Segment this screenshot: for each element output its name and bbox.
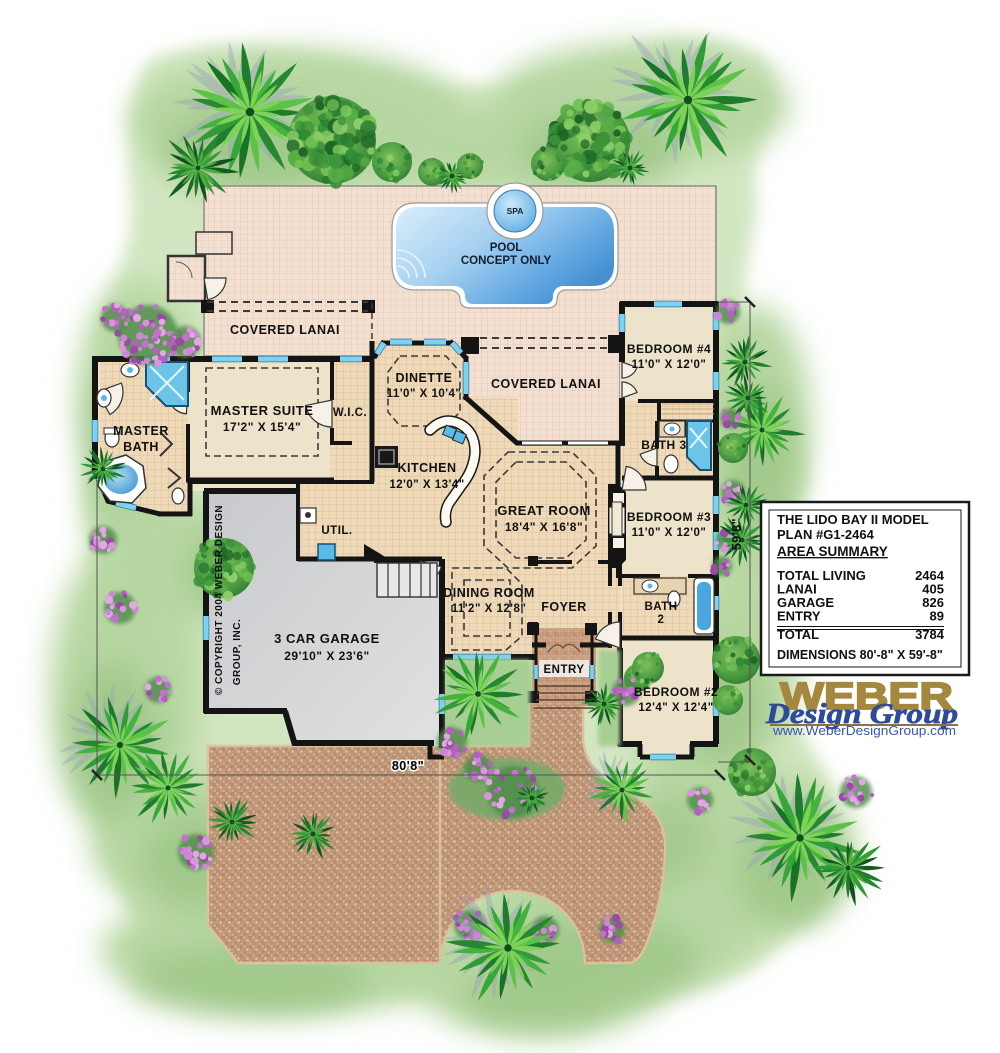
svg-text:17'2" X 15'4": 17'2" X 15'4" — [223, 420, 301, 434]
svg-text:BEDROOM #2: BEDROOM #2 — [634, 685, 718, 699]
svg-text:© COPYRIGHT 2004 WEBER DESIGN: © COPYRIGHT 2004 WEBER DESIGN — [214, 505, 225, 695]
svg-text:BATH 3: BATH 3 — [641, 438, 686, 452]
svg-text:POOL: POOL — [490, 242, 523, 254]
svg-text:BEDROOM #4: BEDROOM #4 — [627, 342, 711, 356]
svg-text:80'8": 80'8" — [392, 759, 424, 773]
svg-text:2: 2 — [658, 614, 665, 626]
svg-text:11'2" X 12'8": 11'2" X 12'8" — [452, 603, 527, 615]
svg-text:W.I.C.: W.I.C. — [333, 407, 367, 419]
svg-text:11'0" X 12'0": 11'0" X 12'0" — [632, 359, 707, 371]
svg-text:3 CAR GARAGE: 3 CAR GARAGE — [274, 631, 380, 646]
svg-text:3784: 3784 — [915, 627, 945, 642]
svg-text:GREAT ROOM: GREAT ROOM — [497, 503, 591, 518]
svg-text:DIMENSIONS 80'-8" X 59'-8": DIMENSIONS 80'-8" X 59'-8" — [777, 648, 943, 662]
svg-text:TOTAL: TOTAL — [777, 627, 819, 642]
svg-text:11'0" X 12'0": 11'0" X 12'0" — [632, 527, 707, 539]
svg-text:ENTRY: ENTRY — [777, 609, 821, 624]
svg-text:THE LIDO BAY II MODEL: THE LIDO BAY II MODEL — [777, 512, 929, 527]
svg-text:FOYER: FOYER — [541, 600, 587, 614]
svg-text:18'4" X 16'8": 18'4" X 16'8" — [505, 520, 583, 534]
svg-text:DINETTE: DINETTE — [396, 371, 453, 385]
svg-text:AREA SUMMARY: AREA SUMMARY — [777, 544, 888, 559]
svg-text:PLAN #G1-2464: PLAN #G1-2464 — [777, 527, 875, 542]
svg-text:MASTER SUITE: MASTER SUITE — [211, 403, 314, 418]
svg-text:59'8": 59'8" — [730, 518, 744, 550]
svg-text:12'0" X 13'4": 12'0" X 13'4" — [389, 479, 464, 491]
svg-text:ENTRY: ENTRY — [543, 664, 584, 676]
svg-text:89: 89 — [930, 609, 944, 624]
svg-text:BATH: BATH — [644, 601, 677, 613]
svg-text:GROUP, INC.: GROUP, INC. — [232, 619, 243, 685]
svg-text:MASTER: MASTER — [113, 424, 169, 438]
svg-text:CONCEPT ONLY: CONCEPT ONLY — [461, 255, 552, 267]
svg-text:SPA: SPA — [507, 206, 524, 216]
svg-text:KITCHEN: KITCHEN — [397, 461, 456, 475]
svg-text:COVERED LANAI: COVERED LANAI — [491, 377, 601, 391]
svg-text:UTIL.: UTIL. — [321, 525, 352, 537]
svg-text:DINING ROOM: DINING ROOM — [443, 586, 535, 600]
svg-text:29'10" X 23'6": 29'10" X 23'6" — [284, 649, 369, 663]
svg-text:www.WeberDesignGroup.com: www.WeberDesignGroup.com — [772, 724, 956, 738]
svg-text:11'0" X 10'4": 11'0" X 10'4" — [387, 388, 462, 400]
svg-text:BATH: BATH — [123, 440, 159, 454]
svg-text:12'4" X 12'4": 12'4" X 12'4" — [638, 702, 713, 714]
svg-text:COVERED LANAI: COVERED LANAI — [230, 323, 340, 337]
svg-text:BEDROOM #3: BEDROOM #3 — [627, 510, 711, 524]
